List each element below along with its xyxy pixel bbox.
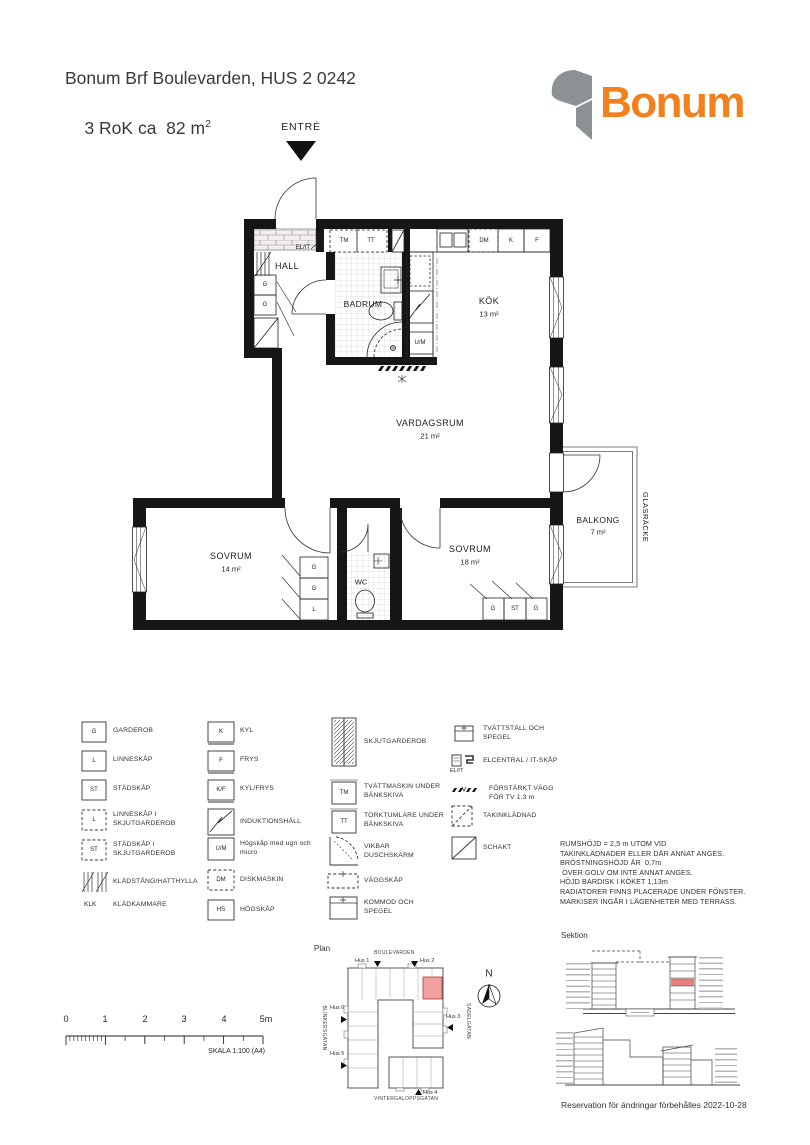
cabinet-g: G [263, 302, 268, 308]
legend-label: LINNESKÅP [113, 756, 153, 765]
highlighted-floor [672, 979, 694, 986]
revision-note: Reservation för ändringar förbehålles 20… [561, 1100, 747, 1110]
legend-sym-g: G [92, 729, 97, 735]
note-line: MARKISER INGÅR I LÄGENHETER MED TERRASS. [560, 897, 737, 907]
scale-tick-label: 1 [102, 1014, 107, 1024]
house-label-5: Hus 5 [330, 1051, 344, 1057]
room-area-vardagsrum: 21 m² [420, 432, 439, 441]
room-label-sovrum-14: SOVRUM [210, 551, 252, 561]
compass-label: N [485, 969, 492, 980]
street-sadelgatan: SADELGATAN [465, 1003, 471, 1039]
room-label-vardagsrum: VARDAGSRUM [396, 418, 464, 428]
scale-tick-label: 2 [142, 1014, 147, 1024]
legend-sym-kf: K/F [216, 787, 225, 793]
legend-sym-hs: HS [217, 907, 225, 913]
scale-tick-label: 4 [221, 1014, 226, 1024]
room-area-sovrum-18: 18 m² [460, 558, 479, 567]
legend-sym-l-dashed: L [92, 817, 95, 823]
dryer-tt: TT [367, 238, 374, 244]
house-label-6: Hus 6 [330, 1005, 344, 1011]
floor-level-labels [699, 957, 723, 1009]
legend-sym-tt: TT [340, 819, 347, 825]
street-blinkersgatan: BLINKERSGATAN [321, 1005, 327, 1050]
floorplan-page: Bonum Bonum Brf Boulevarden, HUS 2 0242 … [0, 0, 810, 1145]
street-vintergaloppsgatan: VINTERGALOPPSGATAN [374, 1096, 438, 1102]
legend-sym-elit: EL/IT [450, 768, 463, 774]
house-label-3: Hus 3 [446, 1014, 460, 1020]
legend-sym-dm: DM [216, 877, 225, 883]
legend-label: TVÄTTMASKIN UNDER BÄNKSKIVA [364, 783, 459, 801]
legend-label: STÄDSKÅP I SKJUTGARDEROB [113, 841, 195, 859]
legend-label: KOMMOD OCH SPEGEL [364, 899, 439, 917]
house-label-2: Hus 2 [420, 958, 434, 964]
title-line1: Bonum Brf Boulevarden, HUS 2 0242 [65, 68, 356, 88]
legend-label: ELCENTRAL / IT-SKÅP [483, 757, 557, 766]
scale-tick-label: 5m [260, 1014, 273, 1024]
legend-sym-l: L [92, 758, 95, 764]
room-label-sovrum-18: SOVRUM [449, 544, 491, 554]
entry-label: ENTRÉ [281, 121, 321, 133]
elit-label: EL/IT [276, 245, 310, 251]
room-label-kok: KÖK [479, 296, 499, 306]
note-line: BRÖSTNINGSHÖJD ÄR 0,7m [560, 858, 661, 868]
legend-label: HÖGSKÅP [240, 906, 275, 915]
entry-arrow-icon [286, 141, 316, 161]
oven-um: U/M [415, 340, 426, 346]
room-area-kok: 13 m² [479, 310, 498, 319]
legend-label: INDUKTIONSHÄLL [240, 818, 301, 827]
legend-label: DISKMASKIN [240, 876, 283, 885]
legend-label: GARDEROB [113, 727, 153, 736]
scale-tick-label: 3 [181, 1014, 186, 1024]
site-plan-drawing [341, 961, 500, 1095]
page-title: Bonum Brf Boulevarden, HUS 2 0242 [65, 68, 356, 89]
apartment-plan [133, 141, 638, 630]
room-area-sovrum-14: 14 m² [221, 565, 240, 574]
legend-sym-k: K [219, 729, 223, 735]
cabinet-g: G [534, 606, 539, 612]
room-label-badrum: BADRUM [344, 299, 383, 309]
legend-label: VIKBAR DUSCHSKÄRM [364, 843, 434, 861]
legend-label: KYL/FRYS [240, 785, 274, 794]
floor-level-labels [566, 963, 590, 1009]
legend-label: SKJUTGARDEROB [364, 738, 426, 747]
street-boulevarden: BOULEVARDEN [374, 950, 415, 956]
legend-sym-f: F [219, 758, 223, 764]
house-label-1: Hus 1 [355, 958, 369, 964]
legend-label: SCHAKT [483, 844, 511, 853]
legend-label: FRYS [240, 756, 259, 765]
legend-sym-klk: KLK [84, 901, 96, 908]
cabinet-g: G [312, 565, 317, 571]
dishwasher-dm: DM [479, 238, 488, 244]
note-line: TAKINKLÄDNADER ELLER DÄR ANNAT ANGES. [560, 849, 724, 859]
house-label-4: Hus 4 [423, 1090, 437, 1096]
balcony-rail-label: GLASRÄCKE [641, 492, 650, 542]
legend-label: VÄGGSKÅP [364, 877, 403, 886]
legend-label: TORKTUMLARE UNDER BÄNKSKIVA [364, 812, 459, 830]
fridge-k: K [509, 238, 513, 244]
subtitle-base: 3 RoK ca 82 m [84, 118, 205, 138]
legend-label: KLÄDKAMMARE [113, 901, 167, 910]
legend-label: STÄDSKÅP [113, 785, 150, 794]
legend-label: TVÄTTSTÄLL OCH SPEGEL [483, 725, 563, 743]
cabinet-l: L [312, 607, 315, 613]
note-line: RUMSHÖJD = 2,5 m UTOM VID [560, 839, 666, 849]
floor-level-labels [556, 1032, 573, 1086]
bonum-logo-icon [552, 70, 592, 140]
room-label-balkong: BALKONG [576, 515, 619, 525]
bonum-logo-text: Bonum [600, 78, 744, 127]
legend-label: Högskåp med ugn och micro [240, 840, 320, 858]
legend-label: FÖRSTÄRKT VÄGG FÖR TV 1.3 m [489, 785, 569, 803]
legend-label: KLÄDSTÅNG/HATTHYLLA [113, 878, 198, 887]
legend-label: LINNESKÅP I SKJUTGARDEROB [113, 811, 195, 829]
siteplan-title: Plan [314, 944, 330, 953]
legend-label: TAKINKLÄDNAD [483, 812, 536, 821]
subtitle-sup: 2 [205, 118, 211, 130]
legend-sym-um: U/M [216, 846, 227, 852]
washer-tm: TM [340, 238, 349, 244]
compass-icon [478, 984, 500, 1007]
legend-label: KYL [240, 727, 253, 736]
legend-sym-st-dashed: ST [90, 847, 98, 853]
page-subtitle: 3 RoK ca 82 m2 [65, 97, 211, 160]
room-label-wc: WC [355, 578, 368, 587]
tv-wall-hatch [378, 366, 426, 383]
scale-bar [66, 1036, 263, 1045]
highlighted-apartment [423, 977, 442, 999]
scale-tick-label: 0 [63, 1014, 68, 1024]
cabinet-g: G [263, 282, 268, 288]
note-line: HÖJD BARDISK I KÖKET 1,13m [560, 877, 668, 887]
legend-sym-tm: TM [340, 790, 349, 796]
freezer-f: F [535, 238, 539, 244]
drawing-layer: Bonum [0, 0, 810, 1145]
room-label-hall: HALL [275, 261, 299, 271]
cabinet-g: G [312, 586, 317, 592]
note-line: ÖVER GOLV OM INTE ANNAT ANGES. [560, 868, 693, 878]
sektion-title: Sektion [561, 931, 588, 940]
note-line: RADIATORER FINNS PLACERADE UNDER FÖNSTER… [560, 887, 746, 897]
cabinet-g: G [491, 606, 496, 612]
floor-level-labels [715, 1048, 737, 1084]
room-area-balkong: 7 m² [591, 528, 606, 537]
cabinet-st: ST [511, 606, 519, 612]
scale-caption: SKALA 1:100 (A4) [175, 1048, 265, 1055]
legend-sym-st: ST [90, 787, 98, 793]
